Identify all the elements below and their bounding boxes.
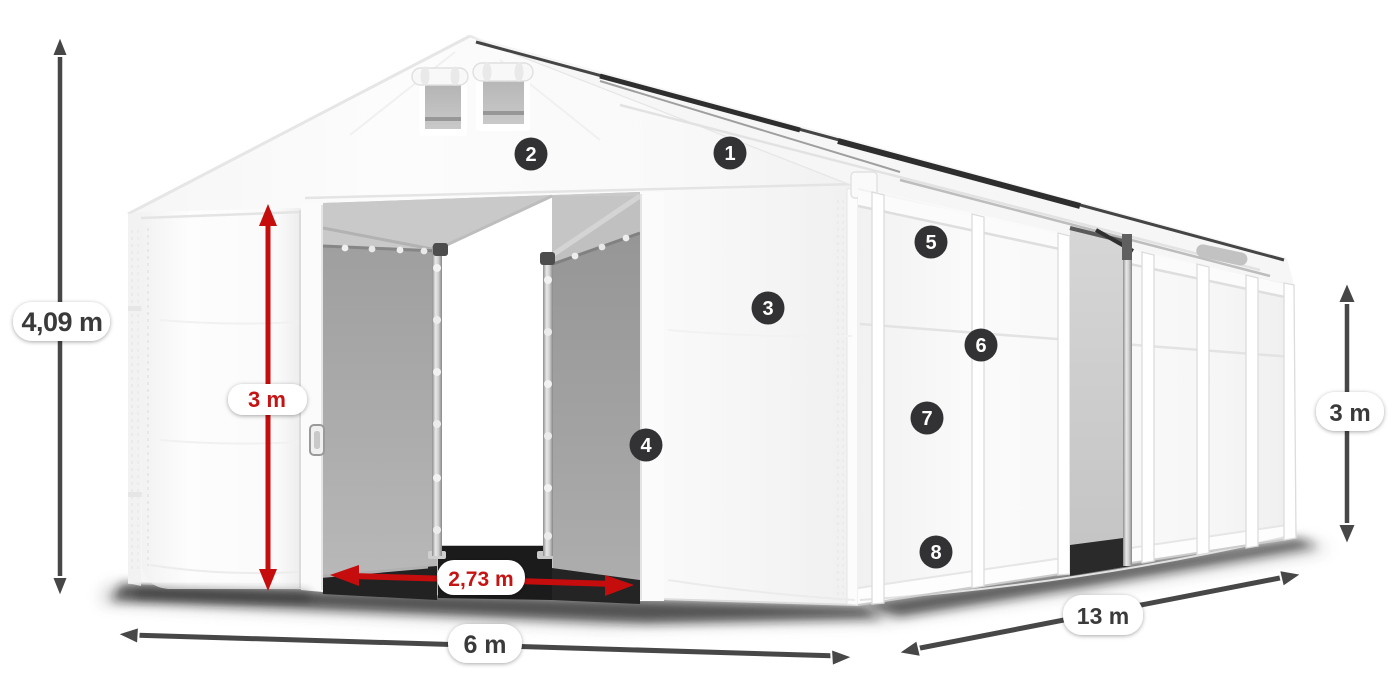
- svg-text:6 m: 6 m: [463, 631, 506, 659]
- svg-text:4: 4: [640, 435, 652, 457]
- svg-text:8: 8: [930, 542, 941, 564]
- svg-text:3: 3: [762, 298, 773, 320]
- svg-text:3 m: 3 m: [1329, 400, 1370, 427]
- svg-text:6: 6: [975, 335, 986, 357]
- svg-text:7: 7: [921, 408, 932, 430]
- svg-text:2,73 m: 2,73 m: [448, 568, 513, 591]
- svg-text:5: 5: [925, 232, 936, 254]
- svg-text:2: 2: [525, 144, 536, 166]
- svg-text:3 m: 3 m: [248, 387, 286, 412]
- svg-text:1: 1: [724, 143, 735, 165]
- svg-text:4,09 m: 4,09 m: [21, 307, 102, 337]
- svg-text:13 m: 13 m: [1077, 603, 1129, 629]
